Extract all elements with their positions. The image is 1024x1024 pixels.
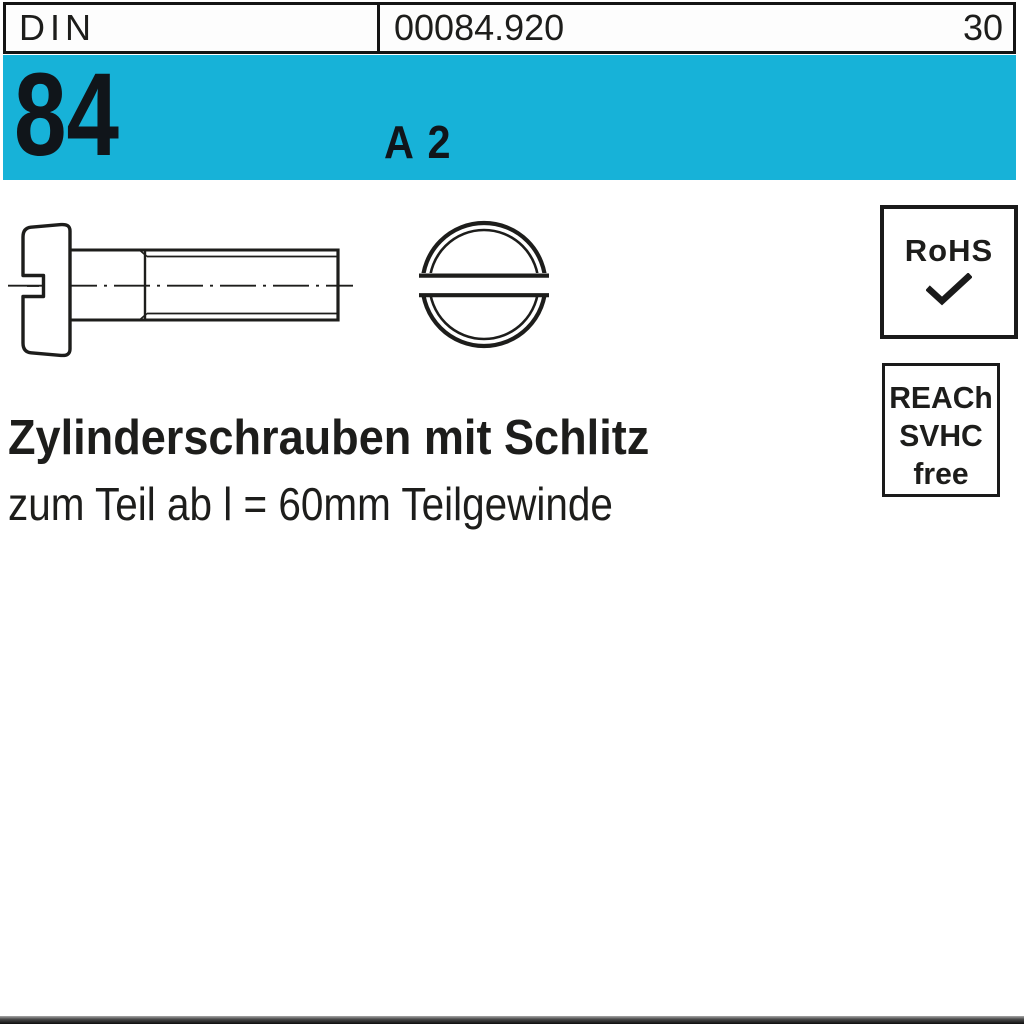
rohs-badge: RoHS [880, 205, 1018, 339]
checkmark-icon [926, 273, 972, 306]
screw-head-outline [23, 225, 70, 356]
reach-line2: SVHC [887, 417, 996, 455]
product-title: Zylinderschrauben mit Schlitz [8, 410, 649, 466]
product-subtitle: zum Teil ab l = 60mm Teilgewinde [8, 477, 613, 531]
reach-line1: REACh [887, 379, 996, 417]
rohs-label: RoHS [884, 233, 1014, 269]
reach-line3: free [887, 455, 996, 493]
screw-top-view [416, 223, 552, 346]
screw-side-view [8, 225, 353, 356]
bottom-edge-shadow [0, 1016, 1024, 1024]
reach-badge: REACh SVHC free [882, 363, 1000, 497]
